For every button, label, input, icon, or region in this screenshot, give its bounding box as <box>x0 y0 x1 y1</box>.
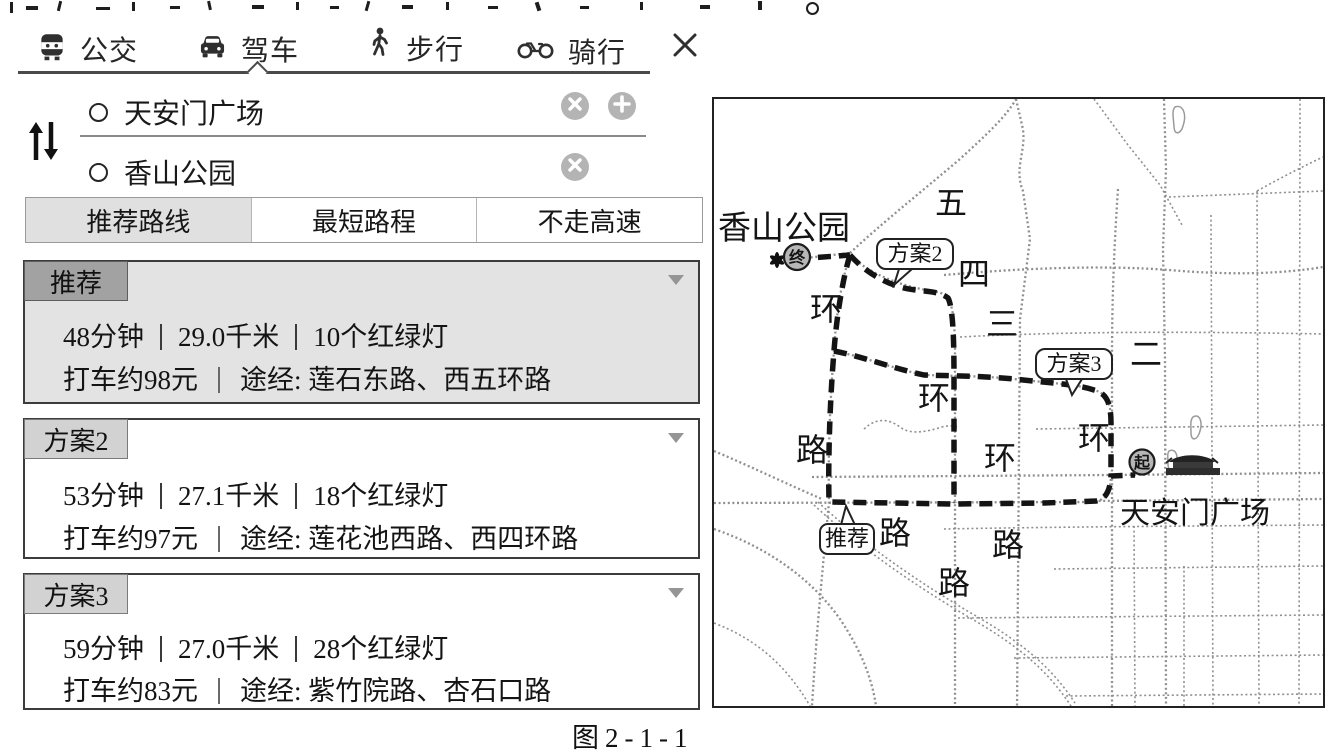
stat-divider <box>160 636 162 662</box>
ring3-char: 路 <box>938 565 970 601</box>
glyph-fragment <box>207 1 212 10</box>
glyph-fragment <box>57 1 62 11</box>
route-via: 途经: 紫竹院路、杏石口路 <box>240 676 551 706</box>
route-fare-line: 打车约97元途经: 莲花池西路、西四环路 <box>63 517 578 556</box>
tabbar-underline <box>18 71 650 74</box>
stat-divider <box>218 678 220 704</box>
swap-origin-destination-button[interactable] <box>24 120 62 167</box>
map-origin-label: 天安门广场 <box>1120 497 1270 530</box>
clear-origin-button[interactable] <box>561 92 589 120</box>
tab-cycling-label: 骑行 <box>568 31 626 71</box>
ring5-char: 五 <box>935 185 967 221</box>
ring2-char: 二 <box>1130 336 1162 372</box>
glyph-fragment <box>296 2 299 10</box>
add-waypoint-button[interactable] <box>608 92 636 120</box>
glyph-fragment <box>580 6 589 9</box>
balloon-plan3: 方案3 <box>1036 349 1112 395</box>
glyph-fragment <box>26 6 38 10</box>
map-panel[interactable]: 五 环 路 四 环 路 三 环 路 二 环 路 香山公园 天安门广场 终 <box>712 97 1325 708</box>
route-tab-recommended[interactable]: 推荐路线 <box>26 198 252 242</box>
destination-value: 香山公园 <box>124 152 236 192</box>
route-traffic-lights: 10个红绿灯 <box>313 322 448 352</box>
close-panel-button[interactable] <box>670 30 700 65</box>
close-icon <box>670 47 700 64</box>
route-via: 途经: 莲石东路、西五环路 <box>240 365 551 395</box>
clear-destination-button[interactable] <box>561 153 589 181</box>
stat-divider <box>295 324 297 350</box>
glyph-fragment <box>446 2 449 10</box>
ring5-char: 环 <box>810 291 842 327</box>
field-divider <box>80 135 646 137</box>
stat-divider <box>160 483 162 509</box>
map-canvas: 五 环 路 四 环 路 三 环 路 二 环 路 香山公园 天安门广场 终 <box>714 99 1323 706</box>
route-stats-line: 53分钟27.1千米18个红绿灯 <box>63 474 448 513</box>
route-badge: 方案2 <box>24 419 128 459</box>
origin-value: 天安门广场 <box>124 92 264 132</box>
stat-divider <box>295 483 297 509</box>
tab-driving[interactable]: 驾车 <box>196 29 299 69</box>
route-badge: 推荐 <box>24 261 128 301</box>
ring3-char: 环 <box>984 440 1016 476</box>
route-taxi-fare: 打车约98元 <box>63 365 198 395</box>
ring3-char: 三 <box>986 306 1018 342</box>
ring4-char: 四 <box>958 256 990 292</box>
svg-text:起: 起 <box>1133 453 1151 472</box>
route-fare-line: 打车约83元途经: 紫竹院路、杏石口路 <box>63 669 551 708</box>
bus-icon <box>36 31 68 68</box>
route-distance: 29.0千米 <box>178 322 279 352</box>
route-tab-no-highway[interactable]: 不走高速 <box>477 198 702 242</box>
route-tab-shortest[interactable]: 最短路程 <box>252 198 478 242</box>
destination-marker: 终 <box>784 244 810 270</box>
route-traffic-lights: 28个红绿灯 <box>313 634 448 664</box>
tab-transit-label: 公交 <box>80 29 138 69</box>
stat-divider <box>295 636 297 662</box>
plus-icon <box>613 95 631 118</box>
route-distance: 27.1千米 <box>178 481 279 511</box>
route-duration: 53分钟 <box>63 481 144 511</box>
figure-caption: 图2-1-1 <box>572 721 872 755</box>
ring4-char: 路 <box>879 515 911 551</box>
route-plan2-line <box>850 255 954 503</box>
glyph-fragment <box>170 6 180 9</box>
cropped-text-fragments <box>0 0 1332 16</box>
route-taxi-fare: 打车约97元 <box>63 524 198 554</box>
pedestrian-icon <box>364 26 394 69</box>
glyph-fragment <box>535 2 542 12</box>
route-tab-no-highway-label: 不走高速 <box>538 202 642 239</box>
glyph-fragment <box>700 5 710 9</box>
route-distance: 27.0千米 <box>178 634 279 664</box>
ring2-char: 环 <box>1078 420 1110 456</box>
glyph-fragment <box>488 6 498 9</box>
svg-text:方案3: 方案3 <box>1046 351 1101 376</box>
car-icon <box>196 30 229 68</box>
clear-icon <box>567 157 583 178</box>
route-traffic-lights: 18个红绿灯 <box>313 481 448 511</box>
route-card-plan3[interactable]: 方案3 59分钟27.0千米28个红绿灯 打车约83元途经: 紫竹院路、杏石口路 <box>23 573 700 710</box>
glyph-fragment <box>640 2 643 10</box>
glyph-fragment <box>132 2 135 11</box>
ring4-char: 环 <box>918 380 950 416</box>
route-card-recommended[interactable]: 推荐 48分钟29.0千米10个红绿灯 打车约98元途经: 莲石东路、西五环路 <box>23 260 700 404</box>
svg-text:方案2: 方案2 <box>887 241 942 266</box>
glyph-fragment <box>10 2 13 13</box>
clear-icon <box>567 96 583 117</box>
glyph-fragment <box>402 5 413 9</box>
route-stats-line: 48分钟29.0千米10个红绿灯 <box>63 315 448 354</box>
route-duration: 48分钟 <box>63 322 144 352</box>
svg-text:推荐: 推荐 <box>825 526 869 551</box>
route-stats-line: 59分钟27.0千米28个红绿灯 <box>63 627 448 666</box>
stat-divider <box>218 367 220 393</box>
tab-transit[interactable]: 公交 <box>36 29 138 69</box>
glyph-fragment <box>252 5 264 9</box>
origin-marker: 起 <box>1130 450 1155 475</box>
route-tab-shortest-label: 最短路程 <box>312 202 416 239</box>
route-fare-line: 打车约98元途经: 莲石东路、西五环路 <box>63 358 551 397</box>
route-via: 途经: 莲花池西路、西四环路 <box>240 524 578 554</box>
period-fragment <box>806 2 819 15</box>
glyph-fragment <box>330 6 339 9</box>
balloon-recommended: 推荐 <box>820 506 874 554</box>
ring2-char: 路 <box>992 527 1024 563</box>
swap-arrows-icon <box>24 149 62 166</box>
road-network <box>714 99 1323 706</box>
stat-divider <box>160 324 162 350</box>
bicycle-icon <box>516 35 556 68</box>
glyph-fragment <box>365 1 371 11</box>
expand-caret-icon[interactable] <box>668 275 684 285</box>
origin-field[interactable]: 天安门广场 <box>89 92 264 132</box>
svg-text:终: 终 <box>789 248 806 267</box>
route-type-tabbar: 推荐路线 最短路程 不走高速 <box>25 197 703 243</box>
tab-driving-label: 驾车 <box>241 29 299 69</box>
route-tab-recommended-label: 推荐路线 <box>86 202 190 239</box>
destination-field[interactable]: 香山公园 <box>89 152 236 192</box>
expand-caret-icon[interactable] <box>668 433 684 443</box>
tiananmen-gate-icon <box>1166 455 1220 475</box>
stat-divider <box>218 526 220 552</box>
tab-cycling[interactable]: 骑行 <box>516 31 626 71</box>
destination-flower-icon <box>769 252 786 268</box>
route-duration: 59分钟 <box>63 634 144 664</box>
origin-point-icon <box>89 103 108 122</box>
expand-caret-icon[interactable] <box>668 588 684 598</box>
glyph-fragment <box>758 1 762 10</box>
map-destination-label: 香山公园 <box>718 211 850 247</box>
route-badge: 方案3 <box>24 574 128 614</box>
tab-walking-label: 步行 <box>406 28 464 68</box>
route-card-plan2[interactable]: 方案2 53分钟27.1千米18个红绿灯 打车约97元途经: 莲花池西路、西四环… <box>23 418 700 559</box>
destination-point-icon <box>89 163 108 182</box>
tab-walking[interactable]: 步行 <box>364 26 464 69</box>
glyph-fragment <box>96 7 110 10</box>
landmark-contours <box>1168 106 1201 469</box>
route-taxi-fare: 打车约83元 <box>63 676 198 706</box>
ring5-char: 路 <box>796 432 828 468</box>
